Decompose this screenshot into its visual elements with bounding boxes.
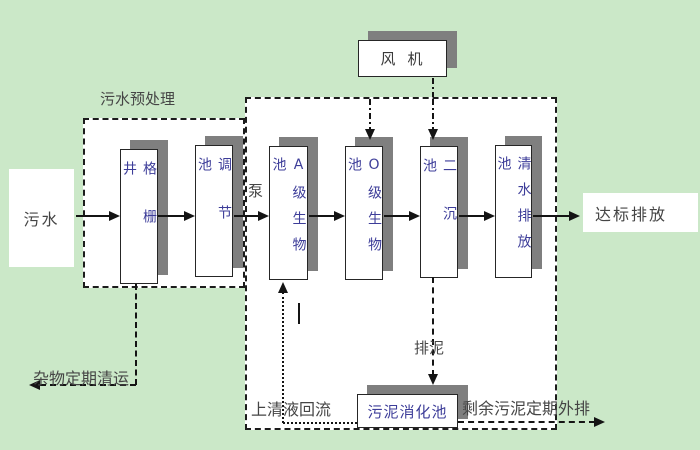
- fan-drop-line: [432, 78, 434, 97]
- tick-mark: [298, 303, 300, 324]
- supernatant-line-horizontal: [283, 422, 357, 424]
- debris-line-vertical: [135, 284, 137, 385]
- sludge-line-vertical: [432, 277, 434, 376]
- air-arrow-tank-o: [365, 129, 375, 140]
- tank-o-label: O级生物池: [344, 147, 384, 279]
- sludge-out-label: 排泥: [414, 337, 444, 358]
- flow-line-tank-o-secondary: [384, 215, 412, 217]
- secondary-sedimentation-label: 二沉池: [419, 147, 459, 277]
- flow-line-tank-a-tank-o: [309, 215, 337, 217]
- arrow-into-regulating: [184, 211, 195, 221]
- air-line-secondary: [432, 99, 434, 130]
- arrow-into-clean-water: [484, 211, 495, 221]
- pump-label: 泵: [248, 180, 263, 201]
- arrow-into-tank-a: [258, 211, 269, 221]
- arrow-into-secondary: [409, 211, 420, 221]
- regulating-tank-label: 调节池: [194, 146, 234, 276]
- flow-line-grille-regulating: [158, 215, 186, 217]
- tank-o-node: O级生物池: [345, 146, 383, 280]
- grille-well-node: 格栅井: [120, 149, 158, 284]
- grille-well-label: 格栅井: [119, 150, 159, 283]
- supernatant-arrow-up: [278, 282, 288, 293]
- fan-node: 风机: [358, 40, 447, 77]
- sludge-arrow-down: [428, 374, 438, 385]
- secondary-sedimentation-node: 二沉池: [420, 146, 458, 278]
- flow-line-sewage-grille: [76, 215, 112, 217]
- arrow-into-discharge: [569, 211, 580, 221]
- tank-a-node: A级生物池: [269, 146, 308, 280]
- flow-line-secondary-clean: [459, 215, 487, 217]
- arrow-into-grille: [109, 211, 120, 221]
- sewage-node: 污水: [9, 169, 74, 267]
- pretreatment-label: 污水预处理: [100, 88, 175, 109]
- air-line-tank-o: [369, 99, 371, 130]
- excess-sludge-label: 剩余污泥定期外排: [462, 395, 590, 419]
- process-flow-diagram: 污水预处理 污水 格栅井 调节池 A级生物池 O级生物池 二沉池 清水排放池 风…: [0, 0, 700, 450]
- regulating-tank-node: 调节池: [195, 145, 233, 277]
- sludge-digestion-node: 污泥消化池: [357, 394, 458, 428]
- clean-water-tank-node: 清水排放池: [495, 145, 532, 278]
- clean-water-tank-label: 清水排放池: [494, 146, 534, 277]
- flow-line-clean-discharge: [533, 215, 571, 217]
- tank-a-label: A级生物池: [269, 147, 309, 279]
- flow-line-regulating-tank-a: [234, 215, 260, 217]
- air-arrow-secondary: [428, 129, 438, 140]
- excess-sludge-line: [458, 421, 595, 423]
- supernatant-return-label: 上清液回流: [251, 396, 331, 420]
- excess-sludge-arrow-right: [594, 417, 605, 427]
- debris-removal-label: 杂物定期清运: [33, 365, 129, 389]
- arrow-into-tank-o: [334, 211, 345, 221]
- discharge-node: 达标排放: [583, 193, 698, 232]
